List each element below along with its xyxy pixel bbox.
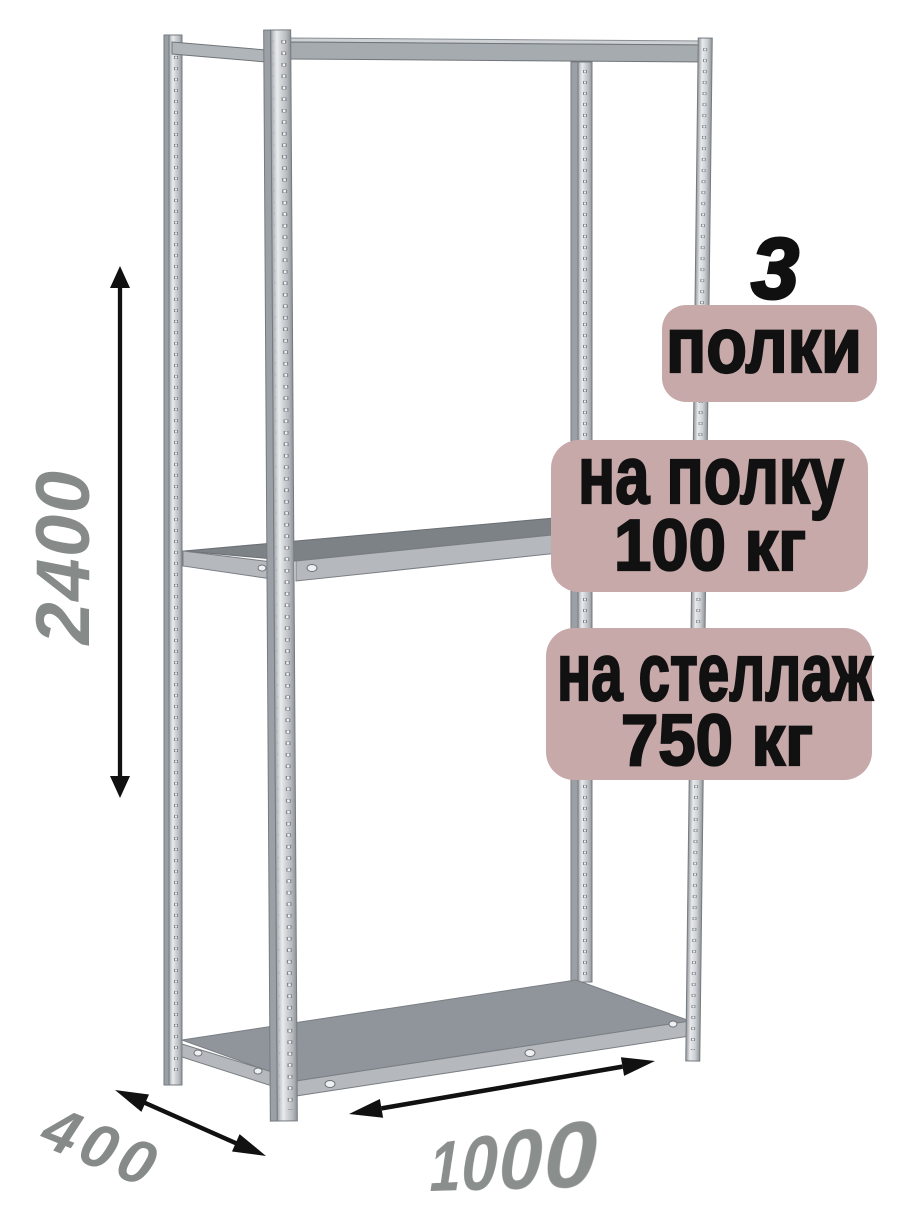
svg-text:2400: 2400: [21, 469, 106, 646]
svg-text:750 кг: 750 кг: [621, 701, 813, 781]
svg-text:полки: полки: [666, 301, 862, 389]
svg-text:100 кг: 100 кг: [614, 506, 806, 586]
